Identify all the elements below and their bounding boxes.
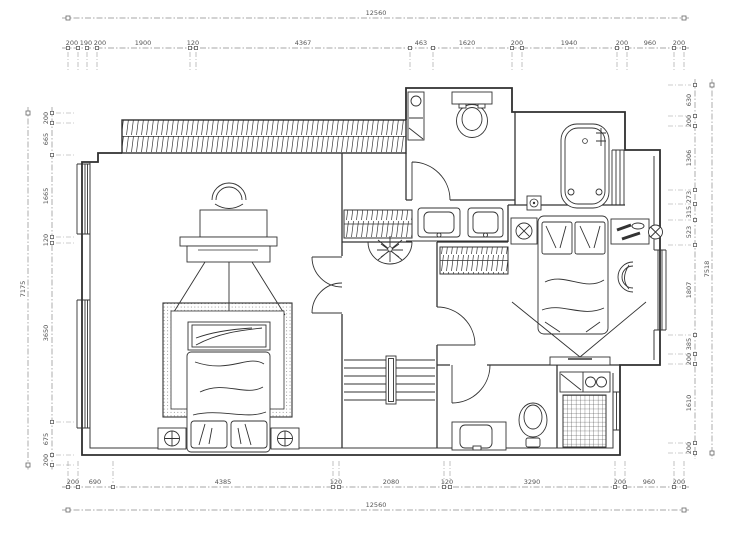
dim-label: 7518 xyxy=(703,261,711,278)
dim-label: 12560 xyxy=(366,501,387,509)
dim-label: 200 xyxy=(42,454,50,466)
dresser-icon xyxy=(611,219,649,244)
dim-ext-left xyxy=(56,113,76,465)
washer-icon xyxy=(527,196,541,210)
bath-cabinet-icon xyxy=(408,92,424,140)
dim-label: 1940 xyxy=(561,39,578,47)
dim-label: 1807 xyxy=(685,282,693,299)
floor-plan-canvas: 12560 200 190 200 1900 120 4367 463 1620… xyxy=(0,0,740,550)
dim-label: 120 xyxy=(42,234,50,246)
dim-label: 1900 xyxy=(135,39,152,47)
dimension-chain-top: 12560 200 190 200 1900 120 4367 463 1620… xyxy=(62,9,690,72)
dim-label: 200 xyxy=(511,39,523,47)
bed-pillows-icon xyxy=(538,216,608,334)
dim-label: 630 xyxy=(685,94,693,106)
dressing-chair-icon xyxy=(618,262,633,292)
window-band-north xyxy=(122,120,406,153)
dim-label: 4367 xyxy=(295,39,312,47)
toilet-icon xyxy=(452,92,492,138)
desk-chair-icon xyxy=(212,183,246,209)
dim-label: 12560 xyxy=(366,9,387,17)
dimension-chain-bottom: 200 690 4385 120 2080 120 3290 200 960 2… xyxy=(62,461,690,512)
dim-label: 120 xyxy=(330,478,342,486)
tile-grid-icon xyxy=(563,395,606,447)
dim-label: 7175 xyxy=(19,281,27,298)
dim-label: 3650 xyxy=(42,325,50,342)
vanity-double-sink-icon xyxy=(406,208,508,241)
dim-label: 463 xyxy=(415,39,427,47)
dim-label: 120 xyxy=(441,478,453,486)
double-bed-icon xyxy=(187,352,270,452)
stool-icon xyxy=(649,225,663,239)
dim-label: 315 xyxy=(685,206,693,218)
desk-monitor-icon xyxy=(172,210,285,318)
dim-label: 200 xyxy=(685,353,693,365)
dim-label: 273 xyxy=(685,191,693,203)
dim-label: 385 xyxy=(685,338,693,350)
dim-label: 200 xyxy=(67,478,79,486)
dim-label: 200 xyxy=(673,39,685,47)
stairs-icon xyxy=(344,356,435,404)
dim-label: 1306 xyxy=(685,150,693,167)
dimension-chain-left: 7175 200 665 1665 120 3650 675 200 xyxy=(19,107,76,471)
dim-label: 2080 xyxy=(383,478,400,486)
dim-label: 200 xyxy=(42,112,50,124)
dim-label: 1620 xyxy=(459,39,476,47)
dim-label: 200 xyxy=(673,478,685,486)
dim-label: 190 xyxy=(80,39,92,47)
dim-label: 120 xyxy=(187,39,199,47)
nightstand-lamp-icon xyxy=(511,218,537,244)
dim-label: 200 xyxy=(616,39,628,47)
dim-label: 523 xyxy=(685,226,693,238)
dim-label: 3290 xyxy=(524,478,541,486)
dim-label: 960 xyxy=(644,39,656,47)
door-arc-icon xyxy=(312,162,490,403)
dimension-chain-right: 630 200 1306 273 315 523 1807 385 200 16… xyxy=(668,79,714,459)
washbasin-icon xyxy=(452,422,506,450)
dim-label: 960 xyxy=(643,478,655,486)
dim-label: 200 xyxy=(685,442,693,454)
bathtub-icon xyxy=(561,124,609,208)
dim-label: 200 xyxy=(685,115,693,127)
dim-label: 1665 xyxy=(42,188,50,205)
dim-ext-top xyxy=(68,52,684,72)
dim-label: 1610 xyxy=(685,395,693,412)
dim-label: 200 xyxy=(614,478,626,486)
dim-label: 4385 xyxy=(215,478,232,486)
dim-label: 690 xyxy=(89,478,101,486)
dim-label: 665 xyxy=(42,133,50,145)
plant-icon xyxy=(368,236,412,264)
kitchen-sink-icon xyxy=(560,372,610,392)
dim-label: 200 xyxy=(66,39,78,47)
dim-ext-bottom xyxy=(68,461,684,483)
dim-label: 675 xyxy=(42,433,50,445)
dim-label: 200 xyxy=(94,39,106,47)
toilet-icon xyxy=(519,403,547,447)
